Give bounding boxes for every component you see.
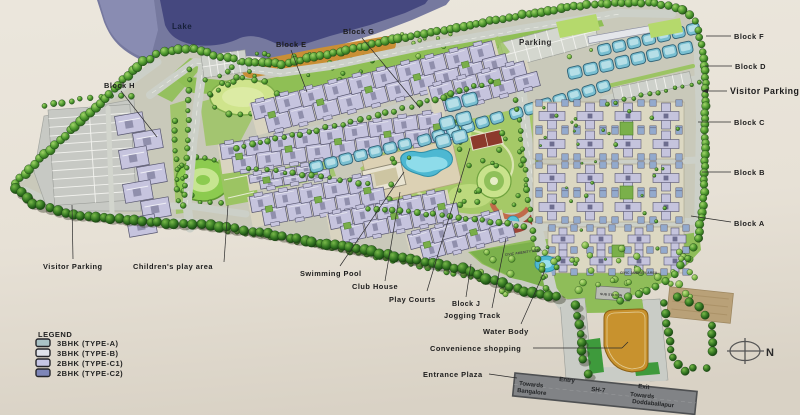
svg-text:Block J: Block J [452,301,480,308]
svg-text:Block A: Block A [734,219,765,228]
svg-text:Block B: Block B [734,168,765,177]
svg-text:Play Courts: Play Courts [389,295,436,304]
svg-text:Exit: Exit [638,383,650,391]
svg-text:2BHK (TYPE-C1): 2BHK (TYPE-C1) [57,359,123,368]
svg-text:Lake: Lake [172,22,192,31]
svg-text:3BHK (TYPE-A): 3BHK (TYPE-A) [57,339,119,348]
svg-text:Block H: Block H [104,81,135,90]
svg-text:N: N [766,347,774,359]
svg-text:Club House: Club House [352,282,398,291]
svg-text:Block C: Block C [734,118,765,127]
svg-text:Block E: Block E [276,40,307,49]
svg-text:Jogging Track: Jogging Track [444,311,501,320]
svg-text:Parking: Parking [519,38,552,47]
svg-text:Block G: Block G [343,27,374,36]
svg-text:Entrance Plaza: Entrance Plaza [423,370,483,379]
svg-text:LEGEND: LEGEND [38,330,72,339]
svg-text:Block F: Block F [734,32,764,41]
svg-text:Children's play area: Children's play area [133,262,213,271]
svg-text:Swimming Pool: Swimming Pool [300,269,362,278]
svg-text:CIVIC AMENITY AREA: CIVIC AMENITY AREA [620,271,658,275]
svg-text:Visitor Parking: Visitor Parking [43,262,103,271]
svg-text:Block D: Block D [735,62,766,71]
svg-text:3BHK (TYPE-B): 3BHK (TYPE-B) [57,349,119,358]
svg-text:Water Body: Water Body [483,327,529,336]
svg-text:2BHK (TYPE-C2): 2BHK (TYPE-C2) [57,369,123,378]
svg-text:Convenience shopping: Convenience shopping [430,344,521,353]
svg-text:Visitor Parking: Visitor Parking [730,86,799,96]
